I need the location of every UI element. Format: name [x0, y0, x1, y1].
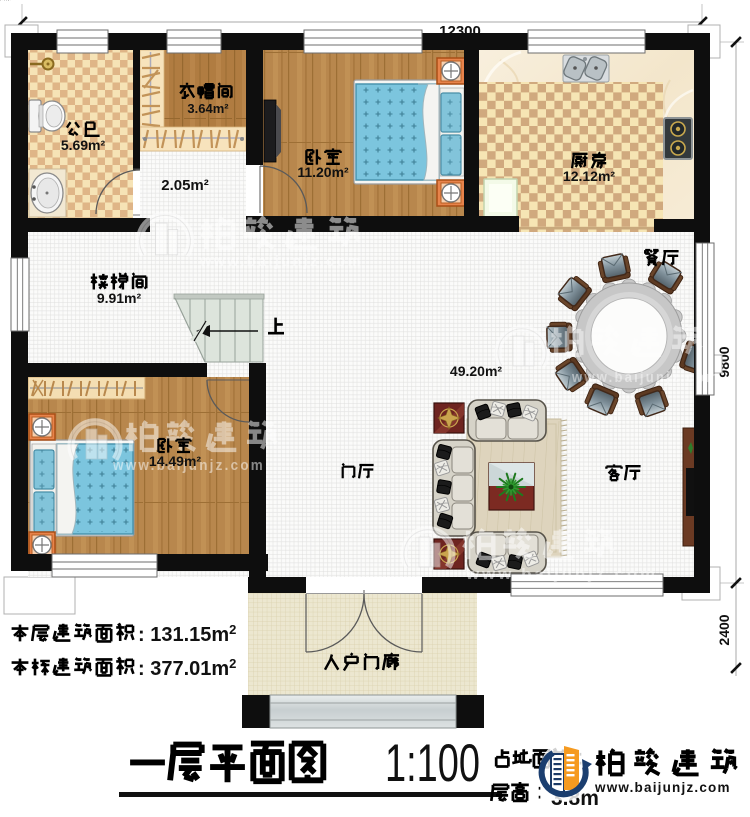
svg-text:www.baijunjz.com: www.baijunjz.com — [199, 253, 363, 270]
svg-text:: 377.01m2: : 377.01m2 — [138, 656, 236, 680]
svg-text:14.49m²: 14.49m² — [149, 453, 201, 469]
svg-text:3.64m²: 3.64m² — [187, 101, 229, 116]
svg-text:m: m — [8, 0, 9, 2]
svg-text:12.12m²: 12.12m² — [563, 168, 615, 184]
svg-text:2.05m²: 2.05m² — [161, 177, 209, 194]
svg-text:2400: 2400 — [716, 614, 732, 645]
svg-text:www.baijunjz.com: www.baijunjz.com — [465, 566, 658, 583]
svg-text:11.20m²: 11.20m² — [297, 164, 349, 180]
svg-text:www.baijunjz.com: www.baijunjz.com — [571, 369, 720, 386]
svg-text:9.91m²: 9.91m² — [97, 290, 142, 306]
svg-text:www.baijunjz.com: www.baijunjz.com — [594, 780, 731, 795]
svg-text:5.69m²: 5.69m² — [61, 137, 106, 153]
svg-text:49.20m²: 49.20m² — [450, 363, 502, 379]
svg-text:: 131.15m2: : 131.15m2 — [138, 622, 236, 646]
svg-text:1:100: 1:100 — [385, 734, 480, 793]
